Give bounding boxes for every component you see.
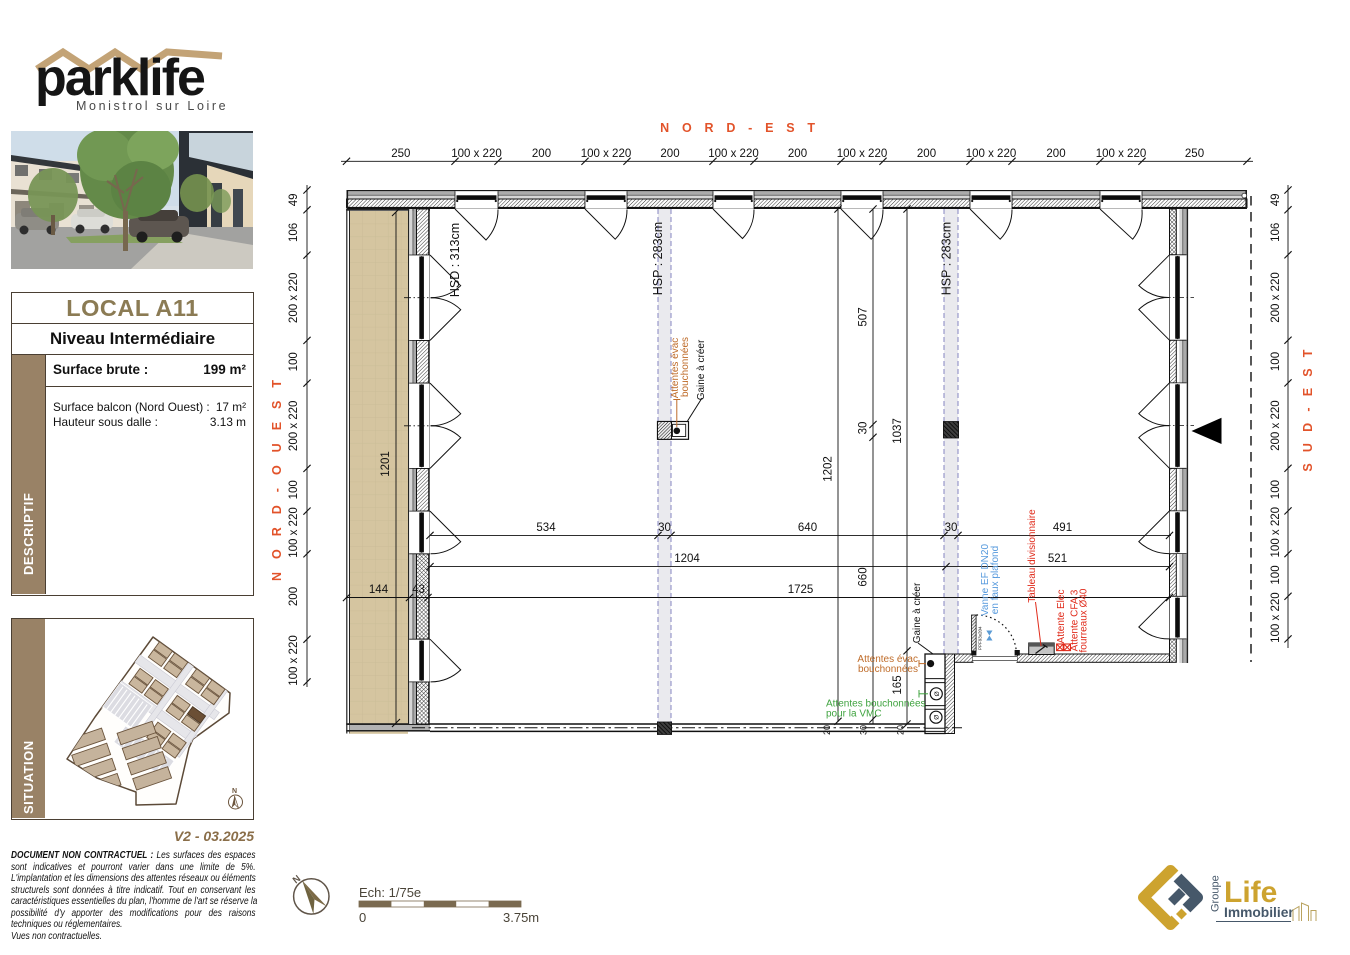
svg-text:100 x 220: 100 x 220: [708, 148, 759, 160]
svg-text:30: 30: [945, 522, 958, 534]
svg-text:fourreaux Ø40: fourreaux Ø40: [1079, 588, 1090, 652]
svg-text:20: 20: [896, 725, 906, 735]
svg-text:pour la VMC: pour la VMC: [826, 709, 882, 720]
svg-text:200: 200: [288, 587, 300, 606]
svg-text:200 x 220: 200 x 220: [1270, 272, 1282, 323]
svg-text:Attente Elec: Attente Elec: [1056, 590, 1067, 644]
svg-text:NORD-OUEST: NORD-OUEST: [270, 367, 284, 581]
svg-text:640: 640: [798, 522, 817, 534]
svg-text:1202: 1202: [823, 456, 835, 482]
svg-text:bouchonnées: bouchonnées: [858, 664, 918, 675]
svg-text:49: 49: [288, 194, 300, 207]
svg-text:534: 534: [536, 522, 556, 534]
svg-text:144: 144: [369, 584, 389, 596]
svg-text:100: 100: [288, 480, 300, 499]
svg-text:165: 165: [892, 675, 904, 694]
svg-text:30: 30: [658, 522, 671, 534]
svg-text:1037: 1037: [892, 418, 904, 444]
svg-text:106: 106: [288, 223, 300, 242]
svg-text:100: 100: [1270, 480, 1282, 499]
svg-text:Gaine à créer: Gaine à créer: [912, 582, 923, 643]
svg-text:1204: 1204: [674, 553, 700, 565]
svg-text:250: 250: [1185, 148, 1204, 160]
svg-text:200: 200: [917, 148, 936, 160]
svg-text:100 x 220: 100 x 220: [1270, 507, 1282, 558]
svg-text:200 x 220: 200 x 220: [1270, 400, 1282, 451]
svg-text:100 x 220: 100 x 220: [451, 148, 502, 160]
svg-text:250: 250: [391, 148, 410, 160]
svg-text:100: 100: [1270, 352, 1282, 371]
svg-text:NORD-EST: NORD-EST: [660, 121, 828, 135]
svg-text:200: 200: [532, 148, 551, 160]
svg-text:100 x 220: 100 x 220: [837, 148, 888, 160]
svg-text:200: 200: [660, 148, 679, 160]
svg-text:100 x 220: 100 x 220: [581, 148, 632, 160]
svg-text:100 x 220: 100 x 220: [966, 148, 1017, 160]
svg-text:660: 660: [858, 567, 870, 586]
svg-text:1725: 1725: [788, 584, 814, 596]
svg-text:30: 30: [859, 725, 869, 735]
svg-text:100 x 220: 100 x 220: [288, 635, 300, 686]
svg-text:HSP : 283cm: HSP : 283cm: [940, 222, 954, 295]
svg-text:SUD-EST: SUD-EST: [1301, 338, 1315, 471]
svg-text:Tableau divisionnaire: Tableau divisionnaire: [1027, 509, 1038, 603]
svg-text:30: 30: [858, 422, 870, 435]
svg-text:Gaine à créer: Gaine à créer: [696, 339, 707, 400]
svg-text:106: 106: [1270, 223, 1282, 242]
svg-text:100: 100: [288, 352, 300, 371]
svg-text:200 x 220: 200 x 220: [288, 401, 300, 452]
svg-text:HSP : 283cm: HSP : 283cm: [651, 222, 665, 295]
svg-text:200: 200: [1046, 148, 1065, 160]
svg-text:43: 43: [412, 584, 425, 596]
svg-text:100 x 220: 100 x 220: [288, 507, 300, 558]
svg-text:Ø: Ø: [934, 715, 941, 720]
svg-text:100 x 220: 100 x 220: [1270, 592, 1282, 643]
svg-text:521: 521: [1048, 553, 1067, 565]
svg-text:507: 507: [858, 307, 870, 326]
svg-text:en faux plafond: en faux plafond: [990, 546, 1001, 614]
svg-text:491: 491: [1053, 522, 1072, 534]
svg-text:bouchonnées: bouchonnées: [680, 337, 691, 397]
svg-text:200 x 220: 200 x 220: [288, 273, 300, 324]
svg-text:Ø: Ø: [934, 691, 941, 696]
svg-text:PPF93x204: PPF93x204: [978, 626, 983, 650]
svg-text:100 x 220: 100 x 220: [1096, 148, 1147, 160]
svg-text:20: 20: [822, 725, 832, 735]
svg-text:HSD : 313cm: HSD : 313cm: [448, 223, 462, 297]
svg-text:1201: 1201: [380, 451, 392, 477]
svg-text:49: 49: [1270, 194, 1282, 207]
svg-text:200: 200: [788, 148, 807, 160]
svg-text:100: 100: [1270, 565, 1282, 584]
